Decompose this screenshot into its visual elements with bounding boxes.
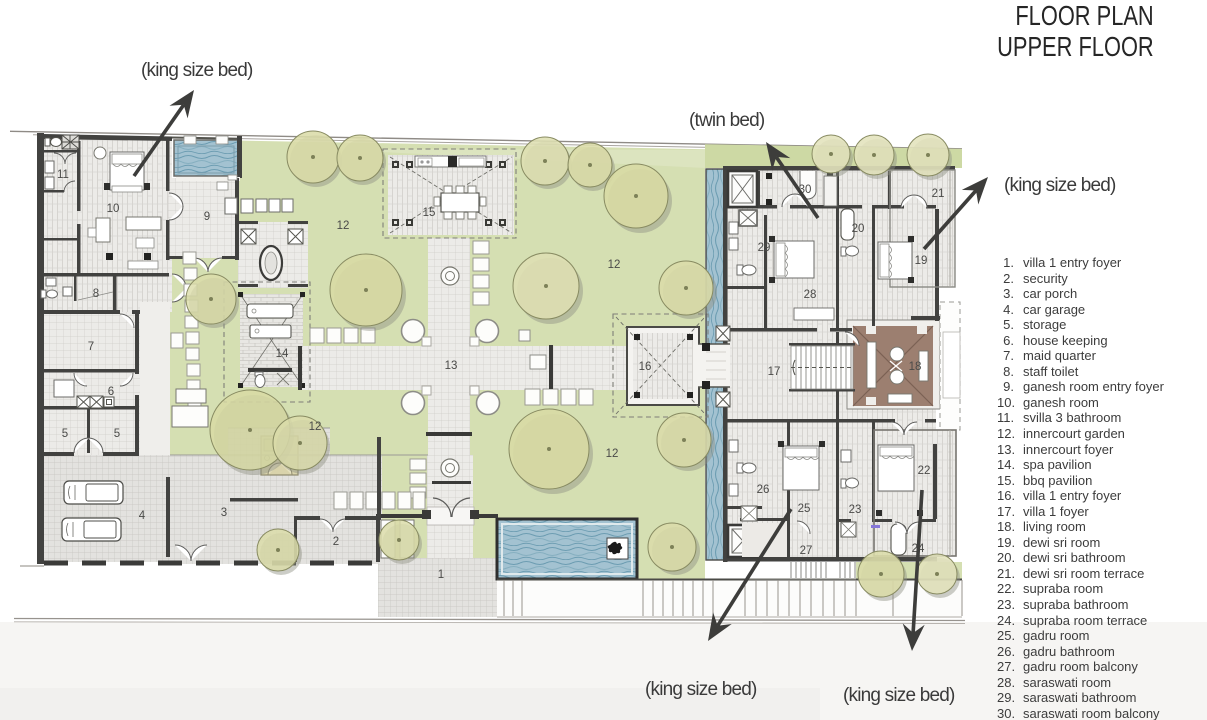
svg-text:21: 21 [932,188,945,200]
svg-text:25: 25 [798,503,811,515]
svg-text:19: 19 [915,255,928,267]
svg-text:27: 27 [800,545,813,557]
svg-text:11: 11 [57,169,69,181]
svg-text:5: 5 [114,428,120,440]
svg-text:26: 26 [757,484,770,496]
svg-text:10: 10 [107,203,120,215]
svg-text:3: 3 [221,507,227,519]
svg-text:2: 2 [333,536,339,548]
svg-text:7: 7 [88,341,94,353]
svg-text:9: 9 [204,211,210,223]
svg-text:22: 22 [918,465,931,477]
svg-text:14: 14 [276,348,289,360]
svg-text:20: 20 [852,223,865,235]
svg-text:4: 4 [139,510,146,522]
svg-text:12: 12 [606,448,619,460]
svg-text:5: 5 [62,428,68,440]
svg-text:12: 12 [608,259,621,271]
svg-text:28: 28 [804,289,817,301]
svg-text:8: 8 [93,288,99,300]
svg-text:17: 17 [768,366,781,378]
svg-text:1: 1 [438,569,444,581]
svg-text:15: 15 [423,207,436,219]
svg-text:12: 12 [309,421,322,433]
svg-text:23: 23 [849,504,862,516]
svg-text:16: 16 [639,361,652,373]
svg-text:13: 13 [445,360,458,372]
svg-text:29: 29 [758,242,771,254]
svg-text:6: 6 [108,386,114,398]
svg-text:12: 12 [337,220,350,232]
svg-text:18: 18 [909,361,922,373]
